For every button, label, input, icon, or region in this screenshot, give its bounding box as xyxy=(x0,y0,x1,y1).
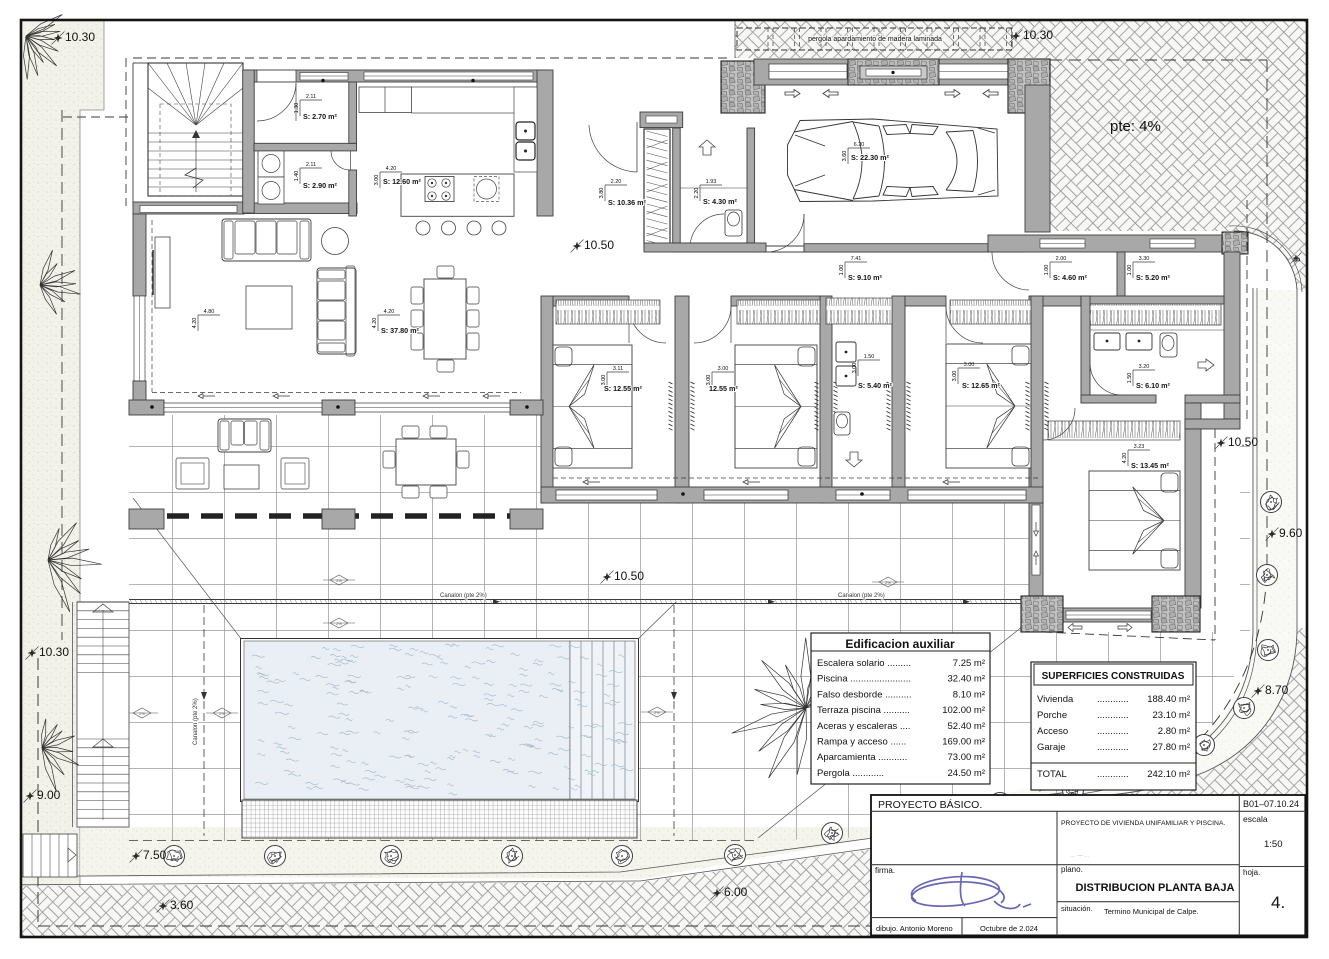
svg-text:pergola apardamiento de madera: pergola apardamiento de madera laminada xyxy=(808,36,942,43)
svg-text:2%: 2% xyxy=(885,580,891,585)
svg-text:B01–07.10.24: B01–07.10.24 xyxy=(1243,799,1299,809)
svg-text:Pergola ............: Pergola ............ xyxy=(817,768,884,779)
svg-text:8.70: 8.70 xyxy=(1265,683,1289,697)
svg-text:pte: 4%: pte: 4% xyxy=(1110,118,1161,135)
svg-text:52.40 m²: 52.40 m² xyxy=(948,721,986,732)
svg-text:3.60: 3.60 xyxy=(170,898,194,912)
svg-text:4.20: 4.20 xyxy=(1122,453,1128,464)
svg-text:1.00: 1.00 xyxy=(1127,265,1133,276)
svg-text:2%: 2% xyxy=(139,711,145,716)
svg-text:10.50: 10.50 xyxy=(1228,435,1258,449)
svg-text:S: 5.20 m²: S: 5.20 m² xyxy=(1136,273,1171,282)
svg-text:2%: 2% xyxy=(219,711,225,716)
svg-text:SUPERFICIES CONSTRUIDAS: SUPERFICIES CONSTRUIDAS xyxy=(1042,671,1185,682)
svg-text:Acceso: Acceso xyxy=(1037,726,1068,737)
svg-text:PROYECTO DE VIVIENDA UNIFAM: PROYECTO DE VIVIENDA UNIFAMILIAR Y PISCI… xyxy=(1061,820,1225,827)
svg-text:1.50: 1.50 xyxy=(1127,373,1133,384)
svg-text:7.41: 7.41 xyxy=(851,256,862,262)
svg-text:............: ............ xyxy=(1097,769,1129,780)
svg-text:Termino Municipal de Calpe.: Termino Municipal de Calpe. xyxy=(1104,907,1199,916)
svg-text:9.00: 9.00 xyxy=(37,788,61,802)
svg-text:1.93: 1.93 xyxy=(706,179,717,185)
svg-text:7.50: 7.50 xyxy=(143,848,167,862)
svg-text:2%: 2% xyxy=(654,710,660,715)
svg-text:Porche: Porche xyxy=(1037,710,1067,721)
svg-text:Rampa y acceso ......: Rampa y acceso ...... xyxy=(817,737,906,748)
svg-text:Vivienda: Vivienda xyxy=(1037,694,1074,705)
svg-text:9.60: 9.60 xyxy=(1279,526,1303,540)
svg-text:27.80 m²: 27.80 m² xyxy=(1153,742,1191,753)
svg-text:Aparcamienta ...........: Aparcamienta ........... xyxy=(817,752,907,763)
svg-text:............: ............ xyxy=(1097,710,1129,721)
svg-text:plano.: plano. xyxy=(1061,865,1083,874)
svg-text:24.50 m²: 24.50 m² xyxy=(948,768,986,779)
svg-text:6.20: 6.20 xyxy=(854,142,865,148)
svg-text:10.50: 10.50 xyxy=(614,569,644,583)
svg-text:Piscina ......................: Piscina ....................... xyxy=(817,674,911,685)
svg-text:2.20: 2.20 xyxy=(611,179,622,185)
svg-text:169.00 m²: 169.00 m² xyxy=(942,737,985,748)
svg-text:4.80: 4.80 xyxy=(204,309,215,315)
svg-text:1.00: 1.00 xyxy=(839,265,845,276)
svg-text:Edificacion auxiliar: Edificacion auxiliar xyxy=(845,637,955,651)
svg-text:Aceras y escaleras ....: Aceras y escaleras .... xyxy=(817,721,910,732)
svg-text:4.: 4. xyxy=(1271,893,1285,912)
svg-text:3.60: 3.60 xyxy=(842,151,848,162)
svg-text:102.00 m²: 102.00 m² xyxy=(942,705,985,716)
svg-text:DISTRIBUCION PLANTA BAJA: DISTRIBUCION PLANTA BAJA xyxy=(1076,882,1235,894)
svg-text:3.00: 3.00 xyxy=(718,366,729,372)
svg-text:Escalera solario .........: Escalera solario ......... xyxy=(817,658,911,669)
svg-text:Octubre de 2.024: Octubre de 2.024 xyxy=(980,924,1038,933)
svg-text:Terraza piscina ..........: Terraza piscina .......... xyxy=(817,705,910,716)
svg-text:4.20: 4.20 xyxy=(192,318,198,329)
svg-text:10.30: 10.30 xyxy=(65,30,95,44)
svg-text:3.30: 3.30 xyxy=(1139,256,1150,262)
svg-text:3.23: 3.23 xyxy=(1134,444,1145,450)
svg-text:1.00: 1.00 xyxy=(1044,265,1050,276)
svg-text:S: 37.80 m²: S: 37.80 m² xyxy=(381,326,420,335)
svg-text:S: 4.30 m²: S: 4.30 m² xyxy=(703,197,738,206)
svg-text:4.20: 4.20 xyxy=(384,309,395,315)
svg-text:2.20: 2.20 xyxy=(694,188,700,199)
svg-text:3.80: 3.80 xyxy=(599,188,605,199)
svg-text:S: 5.40 m²: S: 5.40 m² xyxy=(858,381,893,390)
svg-text:32.40 m²: 32.40 m² xyxy=(948,674,986,685)
svg-text:1.50: 1.50 xyxy=(864,354,875,360)
svg-text:2.00: 2.00 xyxy=(1056,256,1067,262)
svg-text:dibujo. Antonio Moreno: dibujo. Antonio Moreno xyxy=(876,924,953,933)
svg-text:2%: 2% xyxy=(336,578,342,583)
svg-text:8.10 m²: 8.10 m² xyxy=(953,689,985,700)
svg-text:73.00 m²: 73.00 m² xyxy=(948,752,986,763)
svg-text:23.10 m²: 23.10 m² xyxy=(1153,710,1191,721)
svg-text:Canalon (pte 2%): Canalon (pte 2%) xyxy=(193,698,199,745)
svg-text:10.50: 10.50 xyxy=(584,238,614,252)
svg-text:Canalon (pte 2%): Canalon (pte 2%) xyxy=(838,593,885,599)
svg-text:3.00: 3.00 xyxy=(964,362,975,368)
svg-text:7.25 m²: 7.25 m² xyxy=(953,658,985,669)
svg-text:............: ............ xyxy=(1097,742,1129,753)
svg-text:3.00: 3.00 xyxy=(852,363,858,374)
svg-text:10.30: 10.30 xyxy=(39,645,69,659)
svg-text:1:50: 1:50 xyxy=(1264,839,1283,850)
svg-text:3.00: 3.00 xyxy=(374,175,380,186)
svg-text:S: 12.60 m²: S: 12.60 m² xyxy=(383,177,422,186)
svg-text:Falso desborde ..........: Falso desborde .......... xyxy=(817,689,912,700)
svg-text:3.11: 3.11 xyxy=(613,366,623,372)
svg-text:situación.: situación. xyxy=(1061,904,1093,913)
svg-text:1.30: 1.30 xyxy=(294,103,300,114)
svg-text:2.11: 2.11 xyxy=(306,162,316,168)
svg-text:10.30: 10.30 xyxy=(1023,28,1053,42)
svg-text:S: 9.10 m²: S: 9.10 m² xyxy=(848,273,883,282)
svg-text:S: 12.65 m²: S: 12.65 m² xyxy=(962,381,1001,390)
svg-text:TOTAL: TOTAL xyxy=(1037,769,1067,780)
svg-text:escala: escala xyxy=(1243,814,1268,824)
svg-text:4.20: 4.20 xyxy=(386,166,397,172)
svg-text:S: 2.90 m²: S: 2.90 m² xyxy=(303,181,338,190)
svg-text:S: 12.55 m²: S: 12.55 m² xyxy=(604,384,643,393)
svg-text:3.00: 3.00 xyxy=(952,371,958,382)
svg-text:S: 22.30 m²: S: 22.30 m² xyxy=(851,153,890,162)
svg-text:188.40 m²: 188.40 m² xyxy=(1147,694,1190,705)
svg-text:4.20: 4.20 xyxy=(372,318,378,329)
svg-text:Garaje: Garaje xyxy=(1037,742,1066,753)
svg-text:3.20: 3.20 xyxy=(1139,364,1150,370)
svg-text:Canalon (pte 2%): Canalon (pte 2%) xyxy=(440,593,487,599)
svg-text:2%: 2% xyxy=(336,621,342,626)
svg-text:S: 10.36 m²: S: 10.36 m² xyxy=(608,198,647,207)
svg-text:............: ............ xyxy=(1097,694,1129,705)
svg-text:242.10 m²: 242.10 m² xyxy=(1147,769,1190,780)
svg-text:6.00: 6.00 xyxy=(724,885,748,899)
svg-text:............: ............ xyxy=(1097,726,1129,737)
svg-text:2.11: 2.11 xyxy=(306,94,316,100)
svg-text:S: 6.10 m²: S: 6.10 m² xyxy=(1136,381,1171,390)
svg-text:S: 13.45 m²: S: 13.45 m² xyxy=(1131,461,1170,470)
svg-text:12.55 m²: 12.55 m² xyxy=(709,384,738,393)
svg-text:PROYECTO BÁSICO.: PROYECTO BÁSICO. xyxy=(878,798,982,811)
svg-text:firma.: firma. xyxy=(875,866,895,875)
svg-text:… — …: … — … xyxy=(1070,853,1089,859)
svg-text:S: 4.60 m²: S: 4.60 m² xyxy=(1053,273,1088,282)
svg-text:2.80 m²: 2.80 m² xyxy=(1158,726,1190,737)
svg-text:hoja.: hoja. xyxy=(1243,868,1260,877)
svg-text:S: 2.70 m²: S: 2.70 m² xyxy=(303,112,338,121)
svg-text:1.40: 1.40 xyxy=(294,171,300,182)
